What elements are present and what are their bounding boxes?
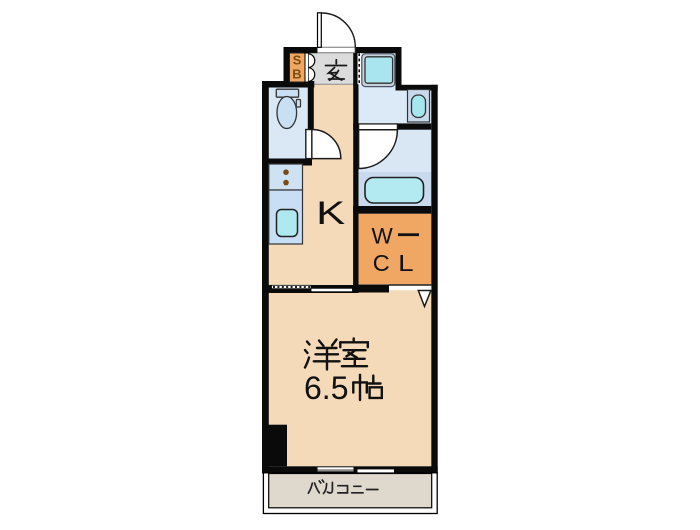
svg-text:L: L — [398, 250, 414, 276]
svg-text:W: W — [372, 224, 394, 249]
svg-text:B: B — [292, 67, 301, 82]
svg-text:6.5: 6.5 — [304, 370, 348, 406]
svg-text:S: S — [293, 53, 302, 68]
svg-text:K: K — [316, 195, 345, 231]
svg-text:C: C — [373, 250, 390, 276]
